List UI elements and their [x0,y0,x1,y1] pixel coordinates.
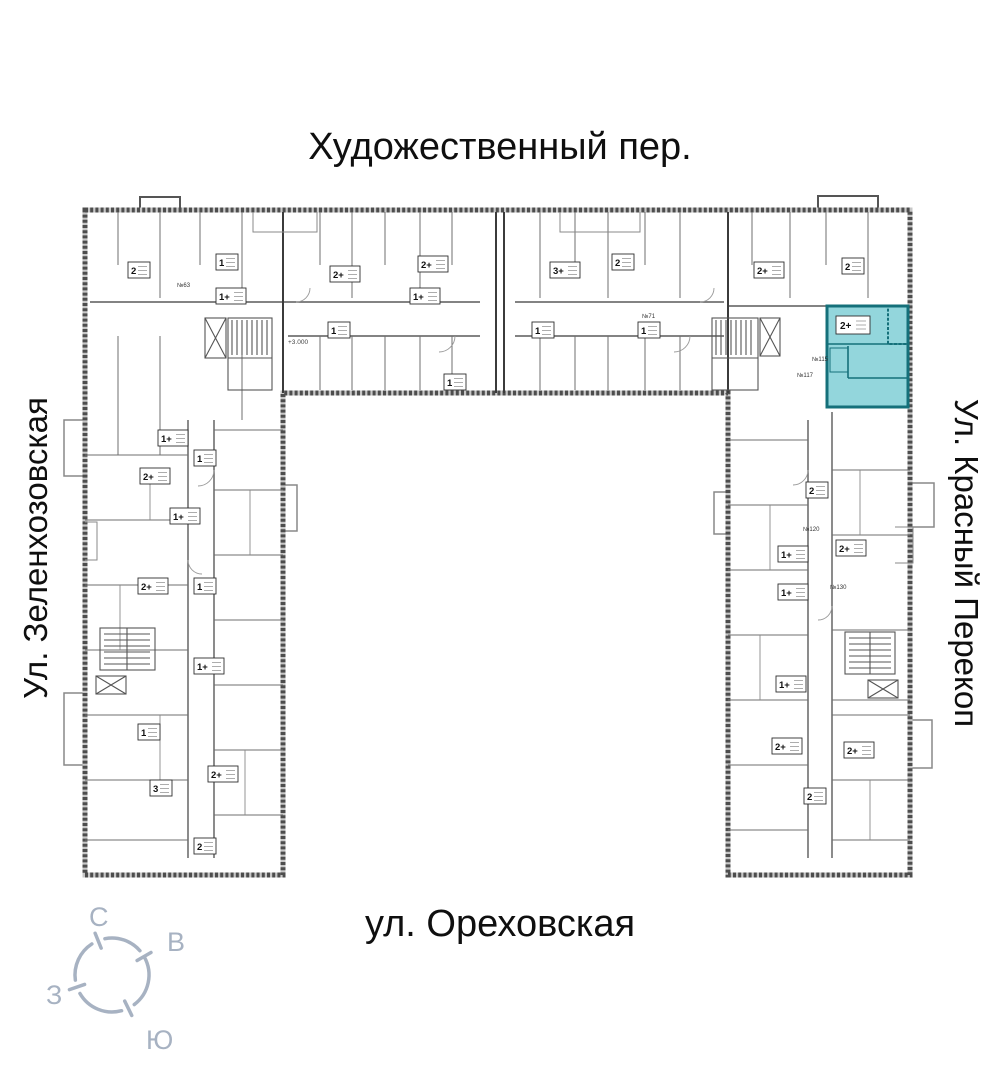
door-number: №120 [803,526,820,533]
svg-text:2: 2 [845,262,850,273]
svg-text:1+: 1+ [161,434,172,445]
building-outline [64,196,934,875]
svg-text:2: 2 [131,266,136,277]
balcony [64,693,85,765]
svg-text:1: 1 [331,326,337,337]
unit-chip[interactable]: 1+ [410,288,440,304]
unit-chip[interactable]: 1+ [170,508,200,524]
door-number: №130 [830,584,847,591]
door-number: №115 [812,356,829,363]
door-number: №117 [797,372,814,379]
svg-text:2+: 2+ [839,544,850,555]
svg-text:2+: 2+ [847,746,858,757]
unit-chip[interactable]: 1+ [778,584,808,600]
svg-text:1+: 1+ [219,292,230,303]
unit-chip[interactable]: 1+ [216,288,246,304]
unit-chip[interactable]: 2 [612,254,634,270]
unit-chip[interactable]: 1 [638,322,660,338]
svg-text:2+: 2+ [421,260,432,271]
svg-text:1+: 1+ [781,588,792,599]
svg-text:1: 1 [197,454,203,465]
svg-text:1: 1 [641,326,647,337]
svg-text:1+: 1+ [413,292,424,303]
unit-chip[interactable]: 2 [842,258,864,274]
unit-chip[interactable]: 1 [328,322,350,338]
unit-chip[interactable]: 2+ [772,738,802,754]
unit-chip[interactable]: 2 [806,482,828,498]
unit-chip[interactable]: 1 [216,254,238,270]
svg-text:3: 3 [153,784,158,795]
unit-chip[interactable]: 1 [444,374,466,390]
unit-chip[interactable]: 2 [194,838,216,854]
compass: С В З Ю [25,885,205,1065]
compass-east-label: В [167,927,185,957]
svg-text:2+: 2+ [143,472,154,483]
unit-chip[interactable]: 1+ [776,676,806,692]
svg-text:2: 2 [809,486,814,497]
balcony [910,483,934,527]
unit-chip[interactable]: 1+ [158,430,188,446]
unit-chip[interactable]: 1 [194,450,216,466]
svg-text:2+: 2+ [141,582,152,593]
compass-south-label: Ю [146,1025,173,1055]
highlighted-apartment[interactable]: 2+ [827,306,908,407]
svg-text:1+: 1+ [173,512,184,523]
unit-chip[interactable]: 1 [532,322,554,338]
unit-chip[interactable]: 1 [138,724,160,740]
unit-chip[interactable]: 2 [804,788,826,804]
svg-text:1: 1 [535,326,541,337]
unit-chip[interactable]: 2+ [844,742,874,758]
unit-chip[interactable]: 2+ [208,766,238,782]
unit-chip[interactable]: 2+ [138,578,168,594]
unit-chip[interactable]: 1+ [194,658,224,674]
unit-chip[interactable]: 2+ [140,468,170,484]
svg-text:2: 2 [615,258,620,269]
svg-text:2: 2 [807,792,812,803]
svg-text:1+: 1+ [779,680,790,691]
svg-text:3+: 3+ [553,266,564,277]
svg-text:1+: 1+ [197,662,208,673]
svg-text:1: 1 [197,582,203,593]
unit-chip[interactable]: 2+ [418,256,448,272]
unit-chip[interactable]: 2+ [330,266,360,282]
balcony [64,420,85,476]
floorplan-page: Художественный пер. Ул. Зеленхозовская У… [0,0,1000,1068]
compass-west-label: З [46,980,62,1010]
unit-chip[interactable]: 2 [128,262,150,278]
unit-chip[interactable]: 2+ [836,540,866,556]
elevation-mark: +3.000 [288,339,308,346]
svg-text:1: 1 [447,378,453,389]
svg-text:1: 1 [219,258,225,269]
svg-text:2+: 2+ [757,266,768,277]
unit-chip[interactable]: 1 [194,578,216,594]
svg-text:2+: 2+ [840,321,852,332]
svg-text:2+: 2+ [333,270,344,281]
svg-text:2: 2 [197,842,202,853]
svg-text:2+: 2+ [211,770,222,781]
unit-chip[interactable]: 2+ [754,262,784,278]
door-number: №63 [177,282,191,289]
compass-north-label: С [89,902,109,932]
svg-text:1+: 1+ [781,550,792,561]
unit-chip[interactable]: 1+ [778,546,808,562]
svg-text:2+: 2+ [775,742,786,753]
door-number: №71 [642,313,656,320]
svg-text:1: 1 [141,728,147,739]
unit-chip[interactable]: 3+ [550,262,580,278]
unit-chip[interactable]: 3 [150,780,172,796]
unit-chip-highlighted[interactable]: 2+ [836,316,870,334]
compass-ring [69,933,151,1015]
balcony [910,720,932,768]
